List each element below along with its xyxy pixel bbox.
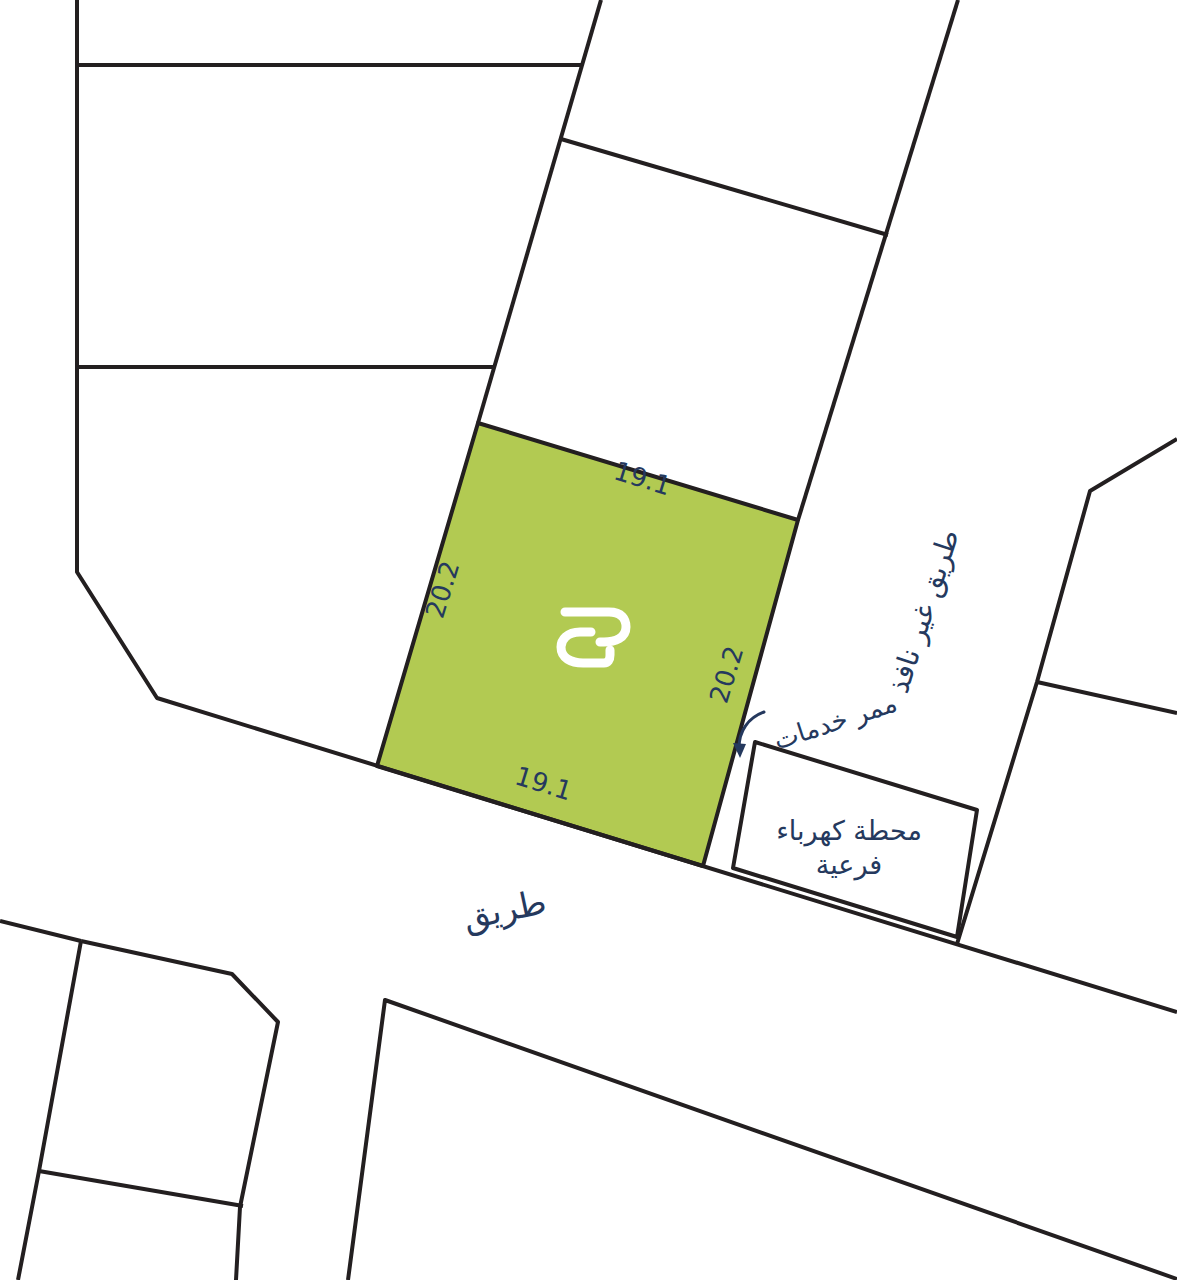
map-canvas: 19.1 20.2 20.2 19.1 طريق طريق غير نافذ م… [0,0,1177,1280]
substation-label-line2: فرعية [816,849,883,881]
substation-label-line1: محطة كهرباء [776,815,922,847]
plot-map: 19.1 20.2 20.2 19.1 طريق طريق غير نافذ م… [0,0,1177,1280]
